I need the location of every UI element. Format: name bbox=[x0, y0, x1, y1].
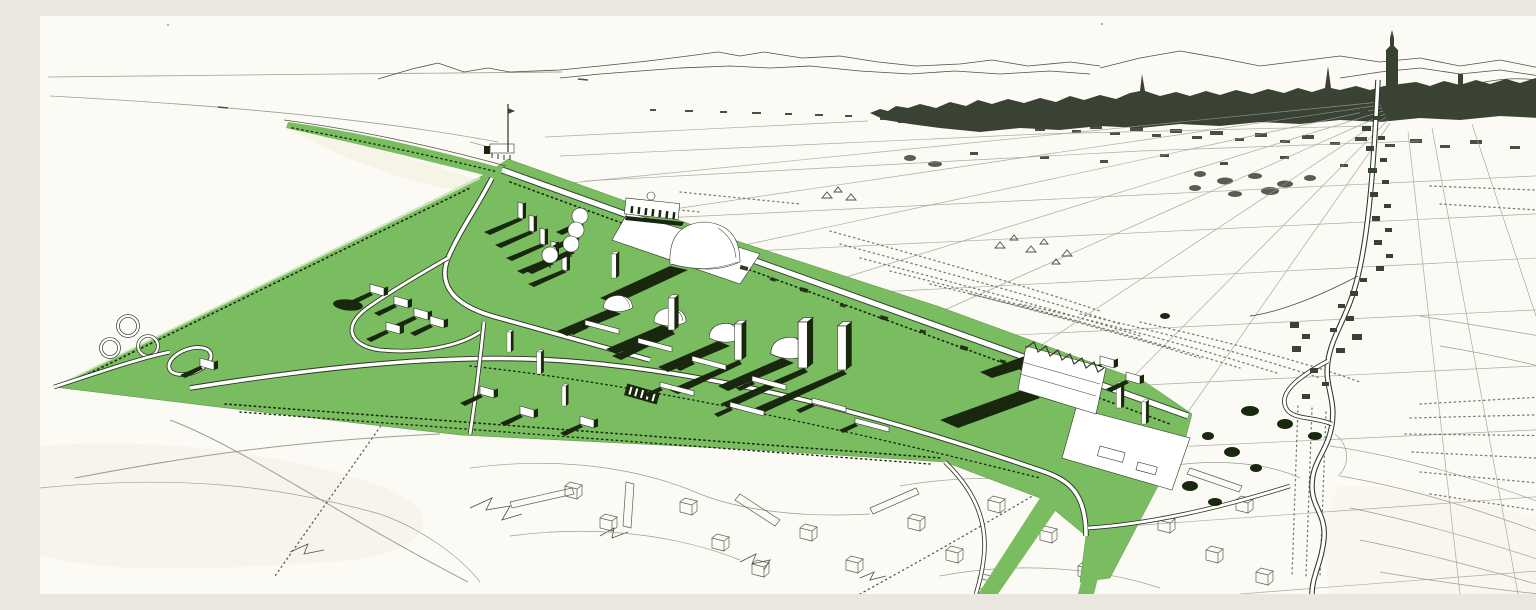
boat-speck bbox=[218, 107, 228, 108]
drawing-canvas bbox=[40, 16, 1536, 594]
boat-speck bbox=[578, 79, 588, 80]
site-plan-illustration bbox=[40, 16, 1536, 594]
